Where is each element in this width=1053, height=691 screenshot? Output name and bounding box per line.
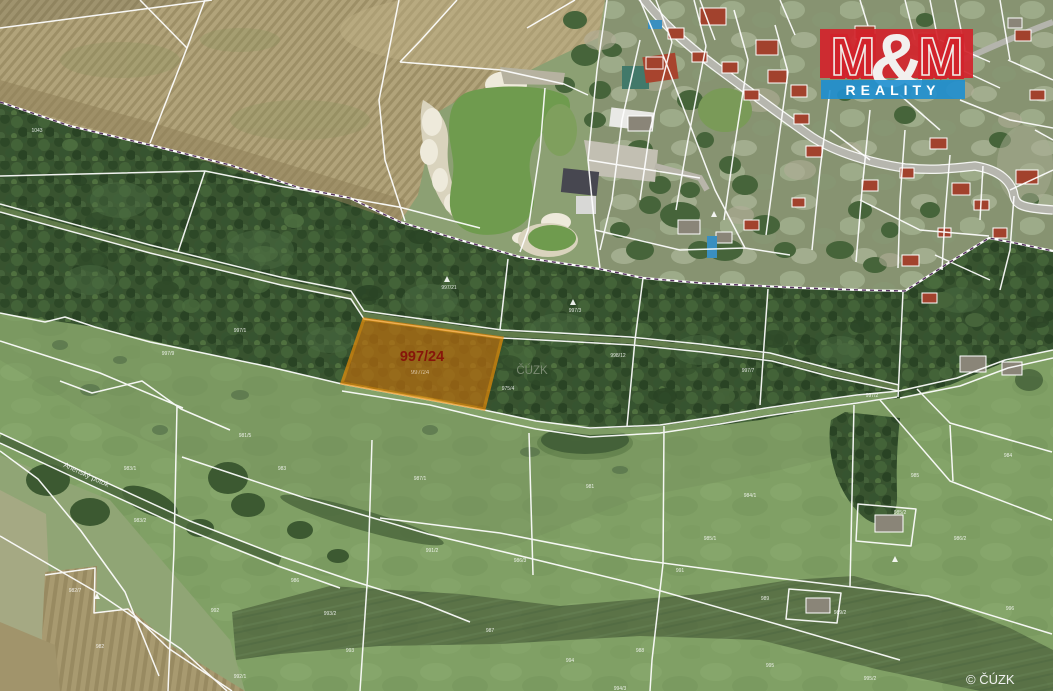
svg-text:986/3: 986/3 bbox=[514, 558, 527, 564]
svg-text:1043: 1043 bbox=[31, 128, 42, 134]
svg-text:982: 982 bbox=[96, 644, 105, 650]
svg-text:994: 994 bbox=[566, 658, 575, 664]
svg-text:991: 991 bbox=[676, 568, 685, 574]
svg-text:989/2: 989/2 bbox=[834, 610, 847, 616]
svg-text:994/3: 994/3 bbox=[614, 686, 627, 691]
svg-text:997/7: 997/7 bbox=[742, 368, 755, 374]
svg-text:982/7: 982/7 bbox=[69, 588, 82, 594]
svg-text:993/2: 993/2 bbox=[324, 611, 337, 617]
svg-text:981: 981 bbox=[586, 484, 595, 490]
svg-text:985/2: 985/2 bbox=[894, 510, 907, 516]
svg-text:997/24: 997/24 bbox=[411, 370, 430, 376]
svg-text:991/2: 991/2 bbox=[426, 548, 439, 554]
svg-text:997/1: 997/1 bbox=[234, 328, 247, 334]
svg-text:992/1: 992/1 bbox=[234, 674, 247, 680]
svg-text:REALITY: REALITY bbox=[846, 82, 941, 98]
svg-text:988: 988 bbox=[636, 648, 645, 654]
svg-text:987/1: 987/1 bbox=[414, 476, 427, 482]
svg-text:986: 986 bbox=[291, 578, 300, 584]
svg-text:ČÚZK: ČÚZK bbox=[516, 364, 548, 377]
svg-text:987: 987 bbox=[486, 628, 495, 634]
svg-text:997/2: 997/2 bbox=[866, 393, 879, 399]
svg-text:997/3: 997/3 bbox=[569, 308, 582, 314]
svg-text:995: 995 bbox=[766, 663, 775, 669]
svg-text:984: 984 bbox=[1004, 453, 1013, 459]
svg-text:984/1: 984/1 bbox=[744, 493, 757, 499]
svg-text:997/9: 997/9 bbox=[162, 351, 175, 357]
svg-text:985/1: 985/1 bbox=[704, 536, 717, 542]
svg-text:992: 992 bbox=[211, 608, 220, 614]
svg-text:975/4: 975/4 bbox=[502, 386, 515, 392]
svg-text:997/21: 997/21 bbox=[441, 285, 457, 291]
svg-text:985: 985 bbox=[911, 473, 920, 479]
svg-text:981/5: 981/5 bbox=[239, 433, 252, 439]
svg-text:© ČÚZK: © ČÚZK bbox=[966, 672, 1015, 687]
svg-text:989: 989 bbox=[761, 596, 770, 602]
svg-text:996: 996 bbox=[1006, 606, 1015, 612]
svg-text:983: 983 bbox=[278, 466, 287, 472]
svg-text:995/2: 995/2 bbox=[864, 676, 877, 682]
svg-text:983/1: 983/1 bbox=[124, 466, 137, 472]
svg-text:986/2: 986/2 bbox=[954, 536, 967, 542]
svg-text:983/2: 983/2 bbox=[134, 518, 147, 524]
svg-text:M: M bbox=[919, 27, 964, 87]
svg-text:997/24: 997/24 bbox=[400, 349, 444, 365]
svg-text:998/12: 998/12 bbox=[610, 353, 626, 359]
svg-text:993: 993 bbox=[346, 648, 355, 654]
